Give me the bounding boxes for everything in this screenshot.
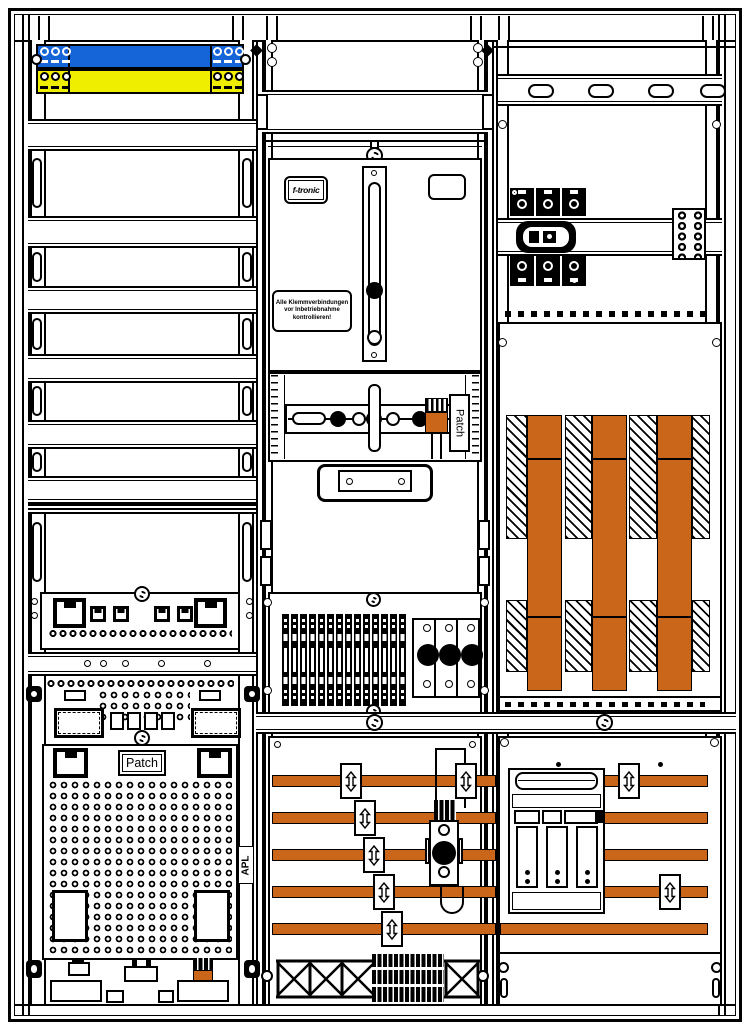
drawing-shape	[199, 690, 221, 701]
rj45-jack-small	[90, 606, 106, 622]
drawing-shape	[242, 252, 252, 282]
busbar-vertical-L3	[657, 415, 692, 691]
field-divider-left	[256, 40, 258, 1006]
module-cutout	[54, 708, 104, 738]
device-rail	[28, 420, 256, 449]
rj45-jack	[194, 598, 227, 628]
rj45-jack	[53, 598, 86, 628]
terminal-comb	[434, 800, 456, 820]
drawing-shape	[592, 458, 627, 460]
drawing-shape	[512, 794, 601, 808]
drawing-shape	[623, 771, 635, 792]
drawing-shape	[460, 771, 472, 792]
drawing-shape	[242, 452, 252, 472]
drawing-shape	[470, 16, 472, 40]
brand-label-box: f-tronic	[284, 176, 328, 204]
rail-slot	[528, 84, 554, 98]
drawing-shape	[28, 123, 256, 147]
drawing-shape	[28, 424, 256, 445]
drawing-shape	[482, 94, 494, 130]
drawing-shape	[158, 660, 165, 667]
drawing-shape	[712, 16, 714, 40]
cable-clamp-icon	[244, 686, 260, 702]
drawing-shape	[327, 614, 334, 706]
drawing-shape	[439, 644, 461, 666]
device-rail	[262, 90, 488, 134]
drawing-shape	[40, 86, 48, 89]
drawing-shape	[518, 780, 595, 781]
drawing-shape	[372, 984, 444, 987]
drawing-shape	[242, 16, 244, 40]
drawing-shape	[440, 433, 442, 459]
drawing-shape	[213, 60, 221, 63]
drawing-shape	[657, 616, 692, 618]
plate-cutout	[194, 890, 230, 942]
drawing-shape	[274, 741, 281, 748]
drawing-shape	[480, 598, 489, 607]
drawing-shape	[267, 43, 277, 53]
drawing-shape	[51, 72, 60, 81]
device-rail	[28, 652, 256, 676]
patch-vertical-label: Patch	[454, 409, 466, 437]
drawing-shape	[363, 614, 370, 706]
drawing-shape	[512, 892, 601, 910]
drawing-shape	[32, 318, 42, 350]
drawing-shape	[492, 40, 494, 1006]
drawing-shape	[625, 772, 634, 791]
drawing-shape	[478, 556, 490, 586]
patch-label-box: Patch	[118, 750, 166, 776]
drawing-shape	[122, 660, 129, 667]
drawing-shape	[712, 338, 721, 347]
drawing-shape	[213, 86, 221, 89]
drawing-shape	[494, 46, 736, 48]
clip	[144, 712, 158, 730]
drawing-shape	[712, 978, 720, 998]
screw	[366, 714, 383, 731]
drawing-shape	[246, 612, 253, 619]
busbar-cover-hatch	[692, 600, 710, 672]
drawing-shape	[256, 94, 268, 130]
drawing-shape: vor Inbetriebnahme	[284, 307, 340, 315]
cross-rail	[256, 712, 736, 734]
drawing-shape	[309, 614, 316, 706]
busbar-cover-hatch	[506, 600, 527, 672]
drawing-shape	[564, 810, 598, 824]
drawing-shape	[518, 190, 526, 194]
busbar-cover-hatch	[565, 415, 592, 539]
drawing-shape	[48, 16, 50, 40]
drawing-shape	[158, 990, 174, 1003]
screw	[134, 586, 150, 602]
drawing-shape	[22, 15, 24, 1015]
drawing-shape	[261, 970, 273, 982]
drawing-shape	[38, 16, 40, 40]
drawing-shape	[724, 15, 726, 1015]
device-rail	[28, 354, 256, 383]
plate-cutout	[52, 890, 88, 942]
drawing-shape	[569, 261, 579, 271]
drawing-shape	[32, 158, 42, 208]
drawing-shape	[431, 433, 433, 459]
drawing-shape	[50, 980, 102, 1002]
drawing-shape	[500, 952, 720, 954]
warning-label: Alle Klemmverbindungen vor Inbetriebnahm…	[272, 290, 352, 332]
drawing-shape	[423, 680, 431, 688]
drawing-shape	[256, 716, 736, 730]
screw	[134, 730, 150, 746]
device-rail	[28, 119, 256, 151]
drawing-shape	[282, 614, 289, 706]
transformer-opening	[432, 841, 456, 865]
drawing-shape	[529, 231, 539, 243]
wall-bolt	[31, 54, 42, 65]
drawing-shape	[352, 412, 366, 426]
drawing-shape	[51, 60, 59, 63]
drawing-shape	[462, 772, 471, 791]
drawing-shape	[347, 772, 356, 791]
drawing-shape	[570, 190, 578, 194]
drawing-shape	[381, 614, 388, 706]
drawing-shape: Alle Klemmverbindungen	[276, 300, 348, 308]
hole-row	[46, 678, 234, 689]
drawing-shape	[435, 748, 466, 750]
drawing-shape	[399, 614, 406, 706]
drawing-shape	[235, 72, 244, 81]
rj45-jack	[197, 748, 232, 778]
vent-slits	[505, 702, 705, 707]
drawing-shape	[262, 94, 488, 130]
drawing-shape	[177, 980, 229, 1002]
drawing-shape	[544, 190, 552, 194]
drawing-shape	[517, 199, 527, 209]
drawing-shape	[543, 261, 553, 271]
drawing-shape	[498, 16, 500, 40]
drawing-shape	[224, 47, 233, 56]
scale-ruler	[271, 375, 285, 459]
drawing-shape	[28, 508, 256, 510]
drawing-shape	[438, 824, 450, 836]
drawing-shape	[512, 190, 517, 195]
drawing-shape	[500, 738, 509, 747]
drawing-shape	[417, 644, 439, 666]
drawing-shape	[461, 644, 483, 666]
drawing-shape	[378, 882, 390, 903]
drawing-shape	[276, 16, 278, 40]
busbar-cover-hatch	[692, 415, 710, 539]
terminal-block-5pole	[672, 208, 706, 260]
drawing-shape	[28, 656, 256, 672]
drawing-shape	[542, 810, 562, 824]
drawing-shape	[28, 358, 256, 379]
drawing-shape	[260, 556, 272, 586]
drawing-shape	[388, 920, 397, 939]
busbar-horizontal-2	[272, 812, 496, 824]
rj45-jack	[53, 748, 88, 778]
drawing-shape	[62, 60, 70, 63]
drawing-shape	[242, 158, 252, 208]
busbar-cover-hatch	[565, 600, 592, 672]
drawing-shape	[122, 754, 162, 772]
drawing-shape	[235, 86, 243, 89]
drawing-shape	[292, 412, 326, 425]
drawing-shape	[106, 990, 124, 1003]
drawing-shape	[477, 970, 489, 982]
busbar-cover-hatch	[629, 600, 657, 672]
drawing-shape	[224, 60, 232, 63]
screw	[596, 714, 613, 731]
drawing-shape: kontrollieren!	[293, 315, 331, 323]
cross-slot	[368, 384, 381, 452]
rj45-jack-small	[113, 606, 129, 622]
drawing-shape	[345, 771, 357, 792]
drawing-shape	[242, 318, 252, 350]
drawing-shape	[544, 278, 552, 282]
drawing-shape	[398, 478, 405, 485]
drawing-shape	[498, 120, 507, 129]
busbar-clamp	[354, 800, 376, 836]
wire-loop	[440, 886, 464, 914]
drawing-shape	[518, 278, 526, 282]
drawing-shape	[263, 598, 272, 607]
drawing-shape	[318, 614, 325, 706]
adjuster-slot	[368, 182, 381, 346]
drawing-shape	[232, 16, 234, 40]
drawing-shape	[386, 412, 400, 426]
cable-clamp-icon	[26, 960, 42, 978]
drawing-shape	[267, 57, 277, 67]
drawing-shape	[367, 330, 382, 345]
drawing-shape	[711, 962, 722, 973]
drawing-shape	[31, 598, 38, 605]
drawing-shape	[291, 614, 298, 706]
drawing-shape	[525, 870, 530, 875]
drawing-shape	[555, 870, 560, 875]
drawing-shape	[336, 614, 343, 706]
drawing-shape	[372, 614, 379, 706]
drawing-shape	[32, 252, 42, 282]
rj45-jack-small	[177, 606, 193, 622]
rail-slot	[588, 84, 614, 98]
drawing-shape	[84, 660, 91, 667]
drawing-shape	[31, 612, 38, 619]
drawing-shape	[666, 883, 675, 902]
drawing-shape	[28, 480, 256, 500]
drawing-shape	[547, 234, 552, 239]
drawing-shape	[467, 624, 475, 632]
clip	[127, 712, 141, 730]
drawing-shape	[527, 616, 562, 618]
drawing-shape	[370, 846, 379, 865]
top-rail-line	[15, 40, 735, 42]
slider-knob	[330, 411, 346, 427]
drawing-shape	[438, 866, 450, 878]
hole-row	[48, 628, 232, 639]
rj45-jack-small	[154, 606, 170, 622]
drawing-shape	[469, 741, 476, 748]
drawing-shape	[480, 686, 489, 695]
drawing-shape	[478, 520, 490, 550]
drawing-shape	[498, 962, 509, 973]
drawing-shape	[300, 614, 307, 706]
busbar-vertical-L1	[527, 415, 562, 691]
small-device	[68, 962, 90, 976]
drawing-shape	[445, 624, 453, 632]
drawing-shape	[595, 810, 603, 823]
busbar-vertical-L2	[592, 415, 627, 691]
drawing-shape	[263, 686, 272, 695]
drawing-shape	[213, 72, 222, 81]
wall-bolt	[240, 54, 251, 65]
drawing-shape	[585, 879, 590, 884]
drawing-shape	[585, 870, 590, 875]
drawing-shape	[480, 16, 482, 40]
orange-terminal	[425, 412, 448, 433]
drawing-shape	[64, 690, 86, 701]
drawing-shape	[572, 278, 577, 283]
drawing-shape	[368, 845, 380, 866]
drawing-shape	[498, 338, 507, 347]
clip	[110, 712, 124, 730]
drawing-shape	[213, 47, 222, 56]
drawing-shape	[473, 43, 483, 53]
rail-slot	[700, 84, 726, 98]
drawing-shape	[710, 738, 719, 747]
drawing-shape	[32, 452, 42, 472]
drawing-shape	[435, 748, 437, 802]
apl-label-box: APL	[238, 846, 254, 884]
busbar-clamp	[340, 763, 362, 799]
drawing-shape	[500, 696, 720, 698]
drawing-shape	[100, 660, 107, 667]
adjuster-knob	[366, 282, 383, 299]
drawing-shape	[359, 808, 371, 829]
drawing-shape	[32, 386, 42, 416]
busbar-clamp	[618, 763, 640, 799]
drawing-shape	[246, 598, 253, 605]
drawing-shape	[592, 616, 627, 618]
terminal-fins	[425, 398, 448, 412]
terminal-comb	[193, 958, 213, 970]
drawing-shape	[224, 86, 232, 89]
device-rail	[28, 286, 256, 314]
drawing-shape	[204, 660, 211, 667]
drawing-shape	[380, 883, 389, 902]
drawing-shape	[371, 352, 377, 358]
screw	[366, 592, 381, 607]
busbar-clamp	[455, 763, 477, 799]
drawing-shape	[515, 772, 598, 790]
drawing-shape	[657, 458, 692, 460]
terminal-strip-block	[282, 614, 410, 706]
drawing-shape	[242, 522, 252, 582]
busbar-clamp	[363, 837, 385, 873]
device-rail	[28, 504, 256, 514]
drawing-shape	[525, 879, 530, 884]
drawing-shape	[390, 614, 397, 706]
drawing-shape	[28, 220, 256, 244]
drawing-shape	[423, 624, 431, 632]
blank-label-box	[428, 174, 466, 200]
drawing-shape	[345, 614, 352, 706]
drawing-shape	[543, 199, 553, 209]
drawing-shape	[514, 810, 540, 824]
module-cutout	[191, 708, 241, 738]
busbar-cover-hatch	[506, 415, 527, 539]
drawing-shape	[62, 72, 71, 81]
drawing-shape	[517, 261, 527, 271]
clip	[161, 712, 175, 730]
drawing-shape	[51, 86, 59, 89]
vent-slits	[505, 311, 705, 317]
patch-vertical-label-box: Patch	[449, 394, 470, 452]
drawing-shape	[40, 47, 49, 56]
small-device	[124, 966, 158, 982]
drawing-shape	[242, 386, 252, 416]
drawing-shape	[62, 47, 71, 56]
drawing-shape	[556, 762, 561, 767]
drawing-shape	[702, 16, 704, 40]
drawing-shape	[40, 72, 49, 81]
busbar-clamp	[373, 874, 395, 910]
cabinet-diagram: Patch APL f-tronic Alle Klemmverbindunge…	[0, 0, 750, 1030]
drawing-shape	[658, 762, 663, 767]
drawing-shape	[508, 16, 510, 40]
drawing-shape	[32, 522, 42, 582]
drawing-shape	[361, 809, 370, 828]
drawing-shape	[664, 882, 676, 903]
drawing-shape	[467, 680, 475, 688]
drawing-shape	[712, 120, 721, 129]
rail-slot	[648, 84, 674, 98]
drawing-shape	[500, 978, 508, 998]
comb-terminal-block	[372, 954, 444, 1002]
drawing-shape	[527, 458, 562, 460]
drawing-shape	[62, 86, 70, 89]
drawing-shape	[51, 47, 60, 56]
drawing-shape	[386, 919, 398, 940]
drawing-shape	[260, 520, 272, 550]
device-rail	[28, 476, 256, 504]
device-rail	[28, 216, 256, 248]
cable-clamp-icon	[26, 686, 42, 702]
drawing-shape	[371, 170, 377, 176]
drawing-shape	[354, 614, 361, 706]
cable-clamp-icon	[244, 960, 260, 978]
drawing-shape	[473, 57, 483, 67]
drawing-shape	[569, 199, 579, 209]
drawing-shape	[288, 180, 324, 200]
drawing-shape	[28, 290, 256, 310]
apl-label: APL	[241, 855, 252, 875]
drawing-shape	[224, 72, 233, 81]
busbar-horizontal-5	[500, 923, 708, 935]
drawing-shape	[266, 16, 268, 40]
busbar-clamp	[381, 911, 403, 947]
drawing-shape	[372, 967, 444, 970]
drawing-shape	[445, 680, 453, 688]
drawing-shape	[346, 478, 353, 485]
busbar-cover-hatch	[629, 415, 657, 539]
drawing-shape	[555, 879, 560, 884]
busbar-clamp	[659, 874, 681, 910]
